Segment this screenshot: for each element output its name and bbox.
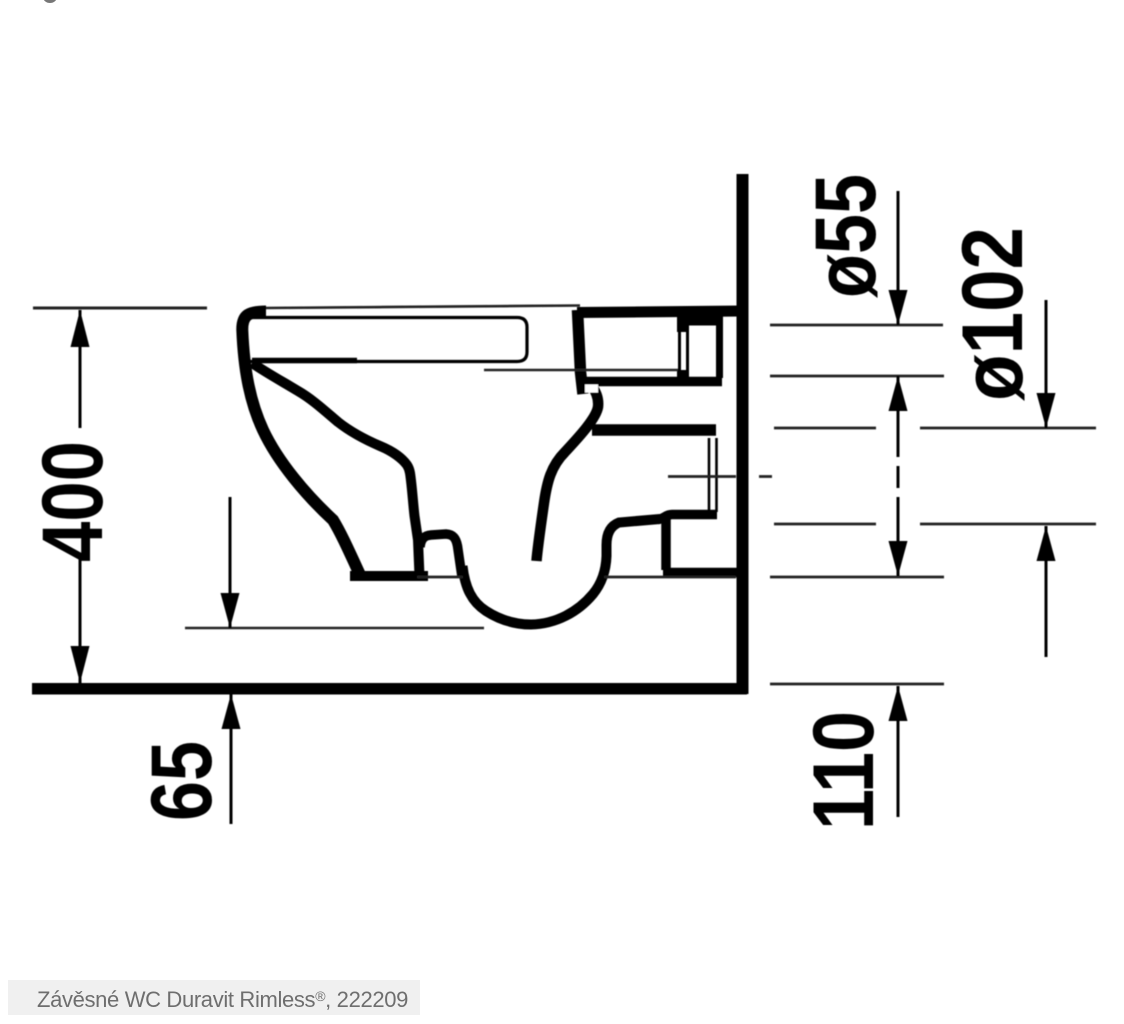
svg-text:400: 400 [25,441,121,562]
svg-text:Závěsné WC Duravit Rimless®, 2: Závěsné WC Duravit Rimless®, 222209 [37,987,408,1012]
svg-text:110: 110 [796,711,892,830]
svg-text:ø102: ø102 [945,227,1041,401]
svg-text:ø55: ø55 [798,174,894,298]
svg-text:65: 65 [134,741,230,821]
